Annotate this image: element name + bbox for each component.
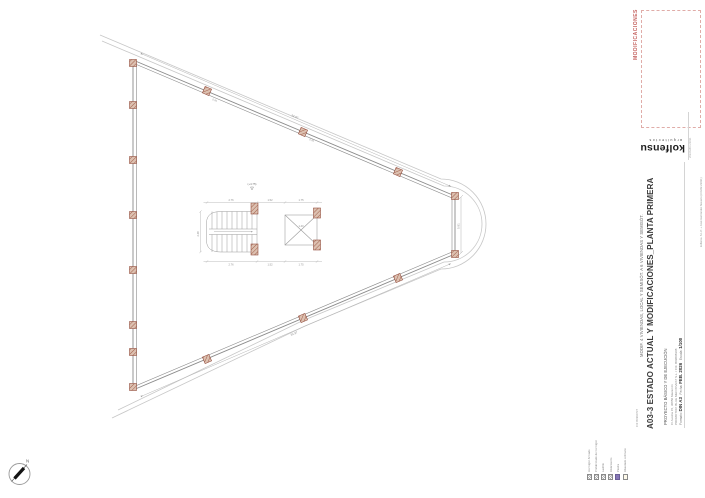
legend-swatch-cream — [623, 474, 628, 480]
north-arrow-icon — [15, 468, 25, 479]
level-value: (+4.75) — [248, 182, 257, 186]
legend-item: Alveolado ordinario — [623, 418, 630, 486]
date-label: Fecha: — [679, 385, 683, 395]
dim-shaft-width-bottom: 1.75 — [298, 263, 304, 267]
legend-swatch-hatch — [601, 474, 606, 480]
date-value: FEB. 2026 — [678, 363, 683, 384]
drawing-sheet: 34.97 34.97 5.81 0.30 0.30 — [0, 0, 705, 498]
scale-value: 1/100 — [678, 338, 683, 349]
kolfensu-logo: kolfensu arquitectos — [645, 127, 685, 153]
sheet-title: A03-3 ESTADO ACTUAL Y MODIFICACIONES_PLA… — [646, 178, 655, 429]
modificaciones-revision-box — [641, 10, 701, 128]
project-modification-line: MODIF. 4 VIVIENDAS, LOCAL Y SEMISÓT. A 6… — [639, 214, 644, 357]
north-compass: N — [9, 459, 30, 485]
dim-tip-chord: 5.81 — [457, 223, 461, 229]
modificaciones-label: MODIFICACIONES — [633, 9, 639, 60]
detail-pillars — [251, 203, 321, 255]
dim-gap-top: 1.52 — [267, 198, 273, 202]
legend-swatch-hatch — [608, 474, 613, 480]
legend-item-label: Prefabricado de hormigón — [594, 440, 598, 472]
logo-registration: 2022AM03 23031 — [689, 138, 692, 158]
legend-swatch-purple — [615, 474, 620, 480]
legend-item-label: Alveolado ordinario — [623, 448, 627, 472]
legend-item: Hormigón Armado — [587, 418, 594, 486]
project-promoter: PROMOTOR: BLUE MED INVEST S.L. / CIF. B0… — [674, 349, 678, 425]
street-lines — [100, 35, 486, 418]
legend-item: Ladrillo — [601, 418, 608, 486]
compass-north-label: N — [26, 459, 29, 464]
dim-edge-bottom: 34.97 — [290, 330, 299, 337]
elevator-shaft — [285, 215, 317, 245]
sheet-meta: Formato: DIN A3 Fecha: FEB. 2026 Escala:… — [678, 338, 683, 425]
detail-dimensions — [199, 201, 322, 262]
level-marker: (+4.75) — [248, 182, 257, 190]
dim-shaft-inner: 1.40 — [298, 224, 304, 228]
dim-shaft-width-top: 1.75 — [298, 198, 304, 202]
detail-dimension-labels: 2.76 1.52 1.75 2.76 1.52 1.75 2.48 1.40 — [196, 198, 304, 267]
scale-label: Escala: — [679, 350, 683, 360]
stair-detail — [207, 212, 258, 253]
dim-gap-bottom: 1.52 — [267, 263, 273, 267]
legend-item: Prefabricado de hormigón — [594, 418, 601, 486]
dim-stair-width-bottom: 2.76 — [228, 263, 234, 267]
legend-item-label: Hormigón Armado — [587, 449, 591, 472]
logo-tagline: arquitectos — [645, 137, 685, 142]
building-outline — [133, 60, 455, 390]
dim-stair-height: 2.48 — [196, 231, 200, 237]
title-block-cif: CIF B0990737 — [635, 409, 639, 427]
legend-swatch-hatch — [587, 474, 592, 480]
dim-stair-width-top: 2.76 — [228, 198, 234, 202]
legend-swatch-hatch — [594, 474, 599, 480]
dim-wall-bottom: 0.30 — [212, 98, 218, 103]
architect-credits: kolfensu S.L.P. + José Hernández Navarro… — [700, 178, 703, 248]
title-block-divider — [684, 162, 685, 428]
project-address: C/ Austria 15, 30850 Mazarrón — [670, 384, 674, 425]
format-label: Formato: — [679, 412, 683, 425]
legend-item-label: Ladrillo — [601, 463, 605, 472]
legend-item-label: Piedra — [616, 464, 620, 472]
legend-item: Aislamiento — [608, 418, 615, 486]
project-phase: PROYECTO BÁSICO Y DE EJECUCIÓN — [663, 348, 668, 425]
structural-pillars — [130, 60, 459, 391]
legend-item: Piedra — [615, 418, 622, 486]
logo-wordmark: kolfensu — [645, 142, 685, 153]
legend-item-label: Aislamiento — [609, 458, 613, 472]
format-value: DIN A3 — [678, 397, 683, 411]
dim-wall-top: 0.30 — [309, 138, 315, 143]
